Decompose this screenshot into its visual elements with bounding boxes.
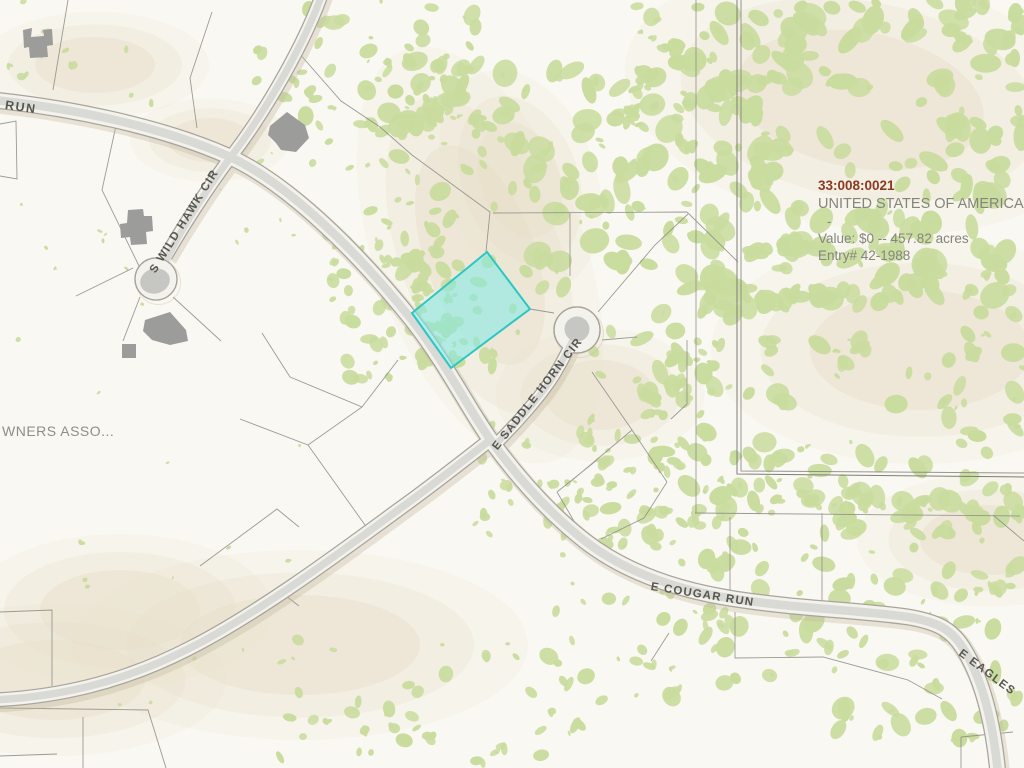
vegetation-blob bbox=[676, 391, 691, 408]
parcel-id: 33:008:0021 bbox=[818, 178, 895, 193]
vegetation-blob bbox=[754, 478, 766, 493]
parcel-entry: Entry# 42-1988 bbox=[818, 248, 910, 263]
parcel-map-viewport: RUN S WILD HAWK CIR E SADDLE HORN CIR E … bbox=[0, 0, 1024, 768]
vegetation-blob bbox=[775, 499, 785, 504]
vegetation-blob bbox=[970, 54, 1001, 73]
vegetation-blob bbox=[440, 643, 444, 646]
parcel-owner: UNITED STATES OF AMERICA. bbox=[818, 196, 1024, 212]
vegetation-blob bbox=[647, 524, 657, 538]
partial-owner-label: WNERS ASSO... bbox=[2, 423, 114, 439]
parcel-map-canvas[interactable]: RUN S WILD HAWK CIR E SADDLE HORN CIR E … bbox=[0, 0, 1024, 768]
vegetation-blob bbox=[415, 174, 420, 185]
building-footprint bbox=[122, 344, 136, 358]
parcel-value: Value: $0 -- 457.82 acres bbox=[818, 231, 969, 246]
vegetation-blob bbox=[754, 201, 761, 212]
parcel-dash: - bbox=[827, 214, 832, 229]
